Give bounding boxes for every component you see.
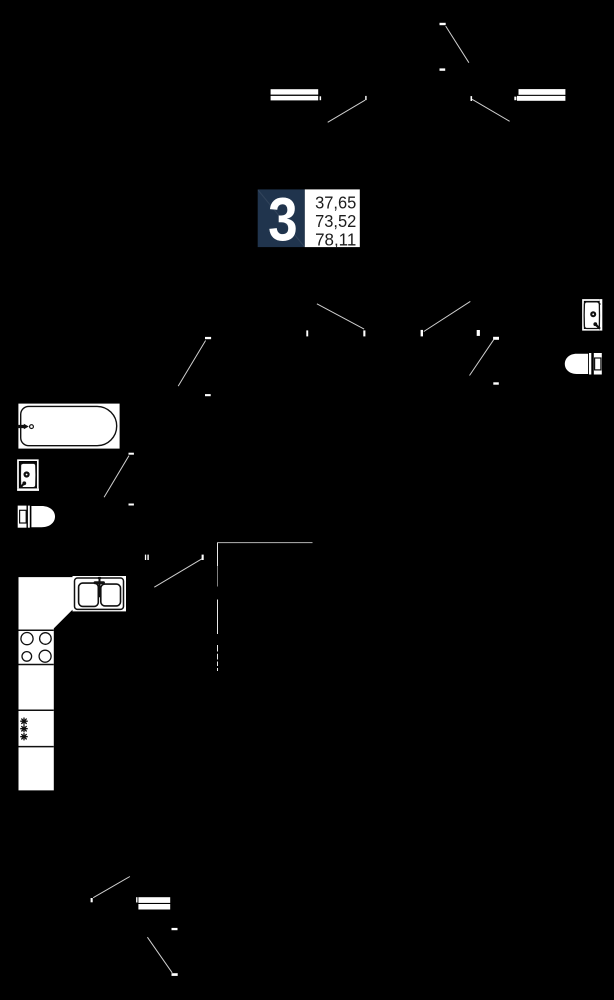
svg-text:3: 3 — [268, 186, 298, 255]
svg-text:78,11: 78,11 — [315, 230, 356, 250]
svg-text:73,52: 73,52 — [315, 211, 356, 231]
svg-text:37,65: 37,65 — [315, 193, 356, 213]
